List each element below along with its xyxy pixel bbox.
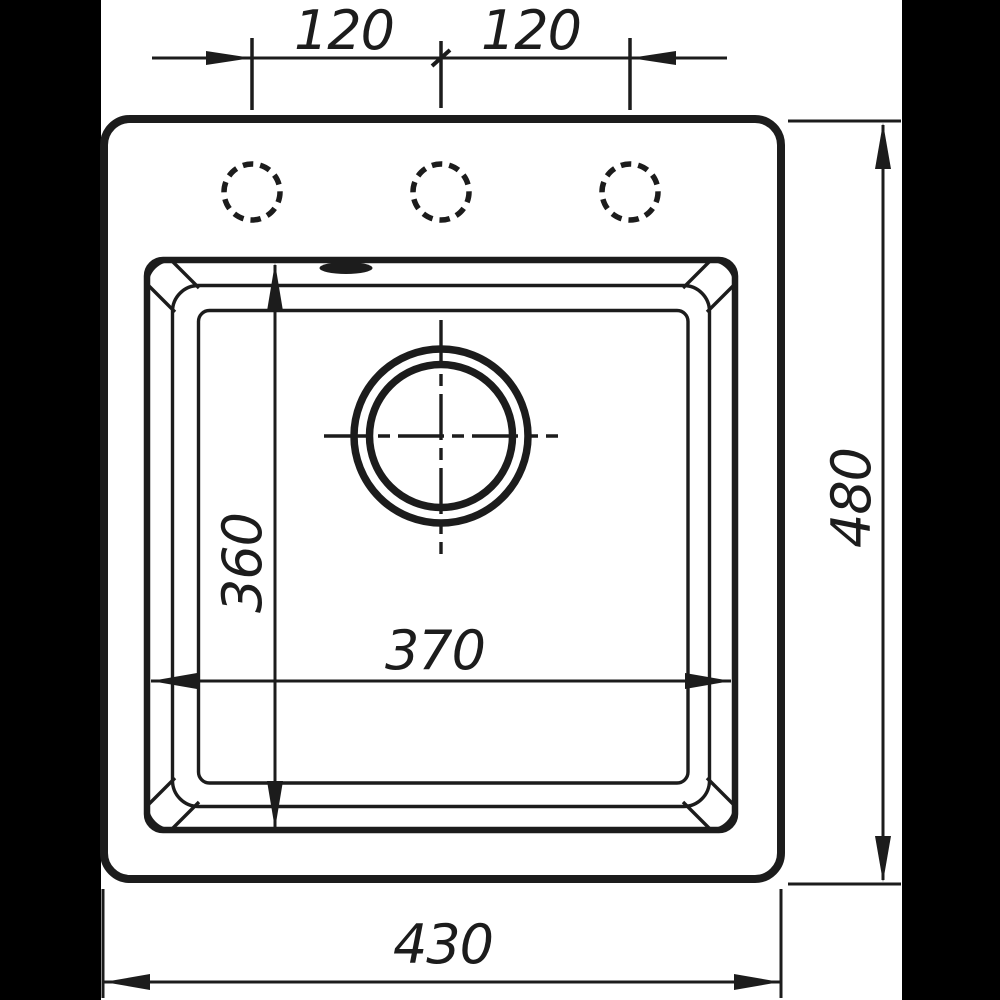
arrowhead-left-icon bbox=[630, 51, 676, 65]
arrowhead-down-icon bbox=[875, 836, 891, 882]
dim-label-430: 430 bbox=[393, 913, 493, 976]
dimension-overall-depth: 480 bbox=[788, 121, 901, 884]
arrowhead-up-icon bbox=[875, 123, 891, 169]
faucet-hole-circle-right bbox=[602, 164, 658, 220]
faucet-hole-circle-middle bbox=[413, 164, 469, 220]
dimension-overall-width: 430 bbox=[103, 889, 781, 998]
dimension-bowl-depth: 360 bbox=[211, 263, 283, 830]
sink-drawing-canvas: 120 120 bbox=[0, 0, 1000, 1000]
technical-drawing-page: 120 120 bbox=[0, 0, 1000, 1000]
faucet-holes bbox=[224, 164, 658, 220]
dim-label-360: 360 bbox=[211, 513, 274, 613]
arrowhead-right-icon bbox=[734, 974, 780, 990]
dim-label-120-left: 120 bbox=[294, 0, 394, 62]
overflow-notch bbox=[320, 262, 373, 274]
arrowhead-right-icon bbox=[206, 51, 252, 65]
dim-label-480: 480 bbox=[820, 448, 883, 548]
dimension-top-hole-pitch: 120 120 bbox=[152, 0, 727, 110]
arrowhead-left-icon bbox=[104, 974, 150, 990]
faucet-hole-circle-left bbox=[224, 164, 280, 220]
dim-label-120-right: 120 bbox=[481, 0, 581, 62]
dim-label-370: 370 bbox=[385, 619, 485, 682]
drain bbox=[324, 320, 558, 554]
dimension-bowl-width: 370 bbox=[151, 619, 731, 689]
